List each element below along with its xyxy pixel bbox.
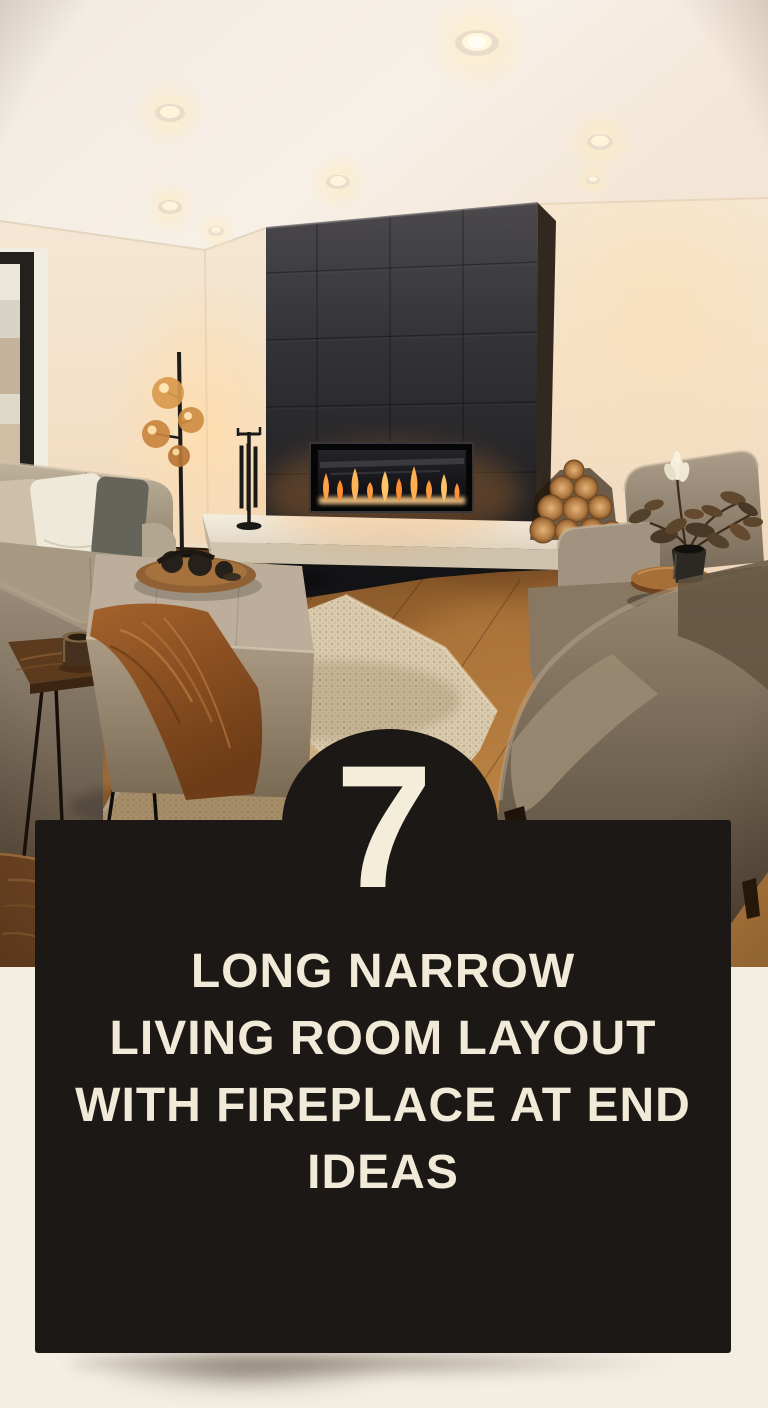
title-card: 7 LONG NARROW LIVING ROOM LAYOUT WITH FI…	[35, 820, 731, 1353]
pin-image: 7 LONG NARROW LIVING ROOM LAYOUT WITH FI…	[0, 0, 768, 1408]
title-line: LONG NARROW	[35, 938, 731, 1005]
card-drop-shadow-left	[95, 1352, 395, 1392]
pin-title: LONG NARROW LIVING ROOM LAYOUT WITH FIRE…	[35, 938, 731, 1206]
count-number: 7	[35, 728, 731, 926]
title-line: LIVING ROOM LAYOUT	[35, 1005, 731, 1072]
title-line: WITH FIREPLACE AT END	[35, 1072, 731, 1139]
title-line: IDEAS	[35, 1139, 731, 1206]
